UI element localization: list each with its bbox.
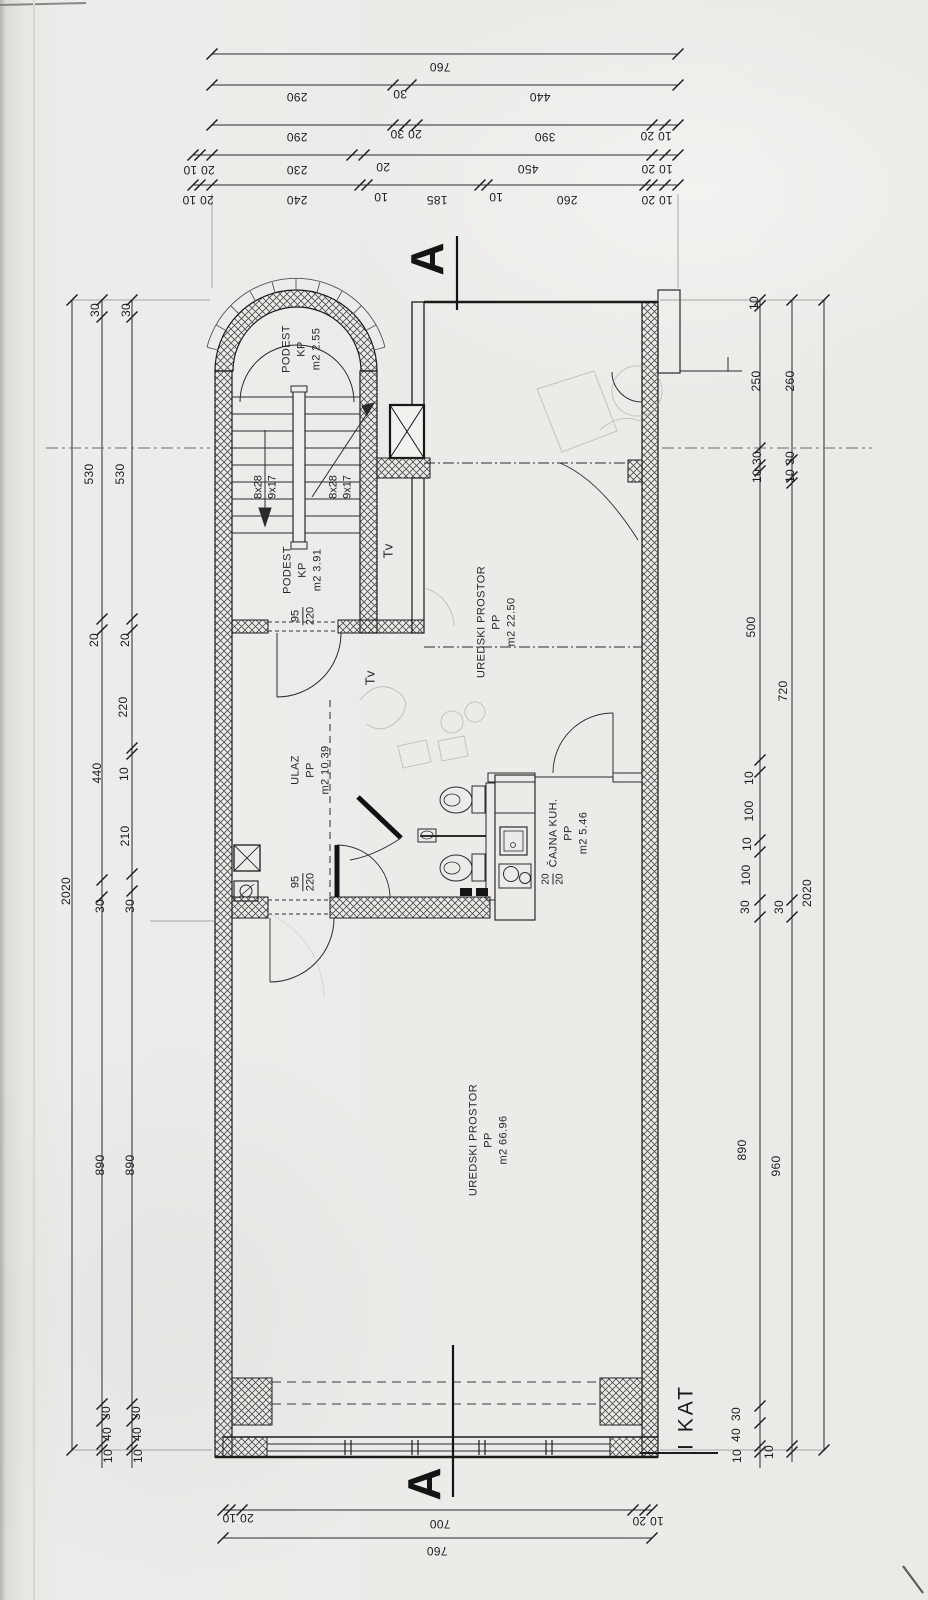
dim-label: 20 [376, 161, 390, 173]
room-line: PODEST [282, 546, 294, 594]
room-line: m2 3.91 [311, 549, 323, 592]
dim-label: 20 10 [183, 164, 215, 176]
dim-label: 10 [751, 469, 763, 483]
dim-label: 20 [119, 633, 131, 647]
dim-label: 10 [118, 767, 130, 781]
dim-label: 500 [745, 617, 757, 638]
dim-label: 100 [740, 865, 752, 886]
room-line: m2 2.55 [310, 328, 322, 371]
dim-label: 700 [430, 1518, 451, 1530]
floor-title: I KAT [676, 1384, 697, 1450]
room-line: m2 22.50 [505, 597, 517, 646]
flight-line: 9x17 [267, 475, 279, 499]
dim-label: 30 [124, 899, 136, 913]
dim-label: 760 [427, 1545, 448, 1557]
door-den: 220 [302, 607, 317, 625]
dim-label: 30 [130, 1406, 142, 1420]
room-line: m2 66.96 [497, 1115, 509, 1164]
door-den: 220 [302, 873, 317, 891]
dim-label: 440 [91, 763, 103, 784]
dim-label: 530 [114, 464, 126, 485]
tv-label-lower: Tv [364, 671, 377, 685]
section-marker-a-bottom: A [401, 1467, 447, 1500]
dim-label: 10 [743, 771, 755, 785]
dim-label: 30 [730, 1407, 742, 1421]
room-line: KP [297, 562, 309, 577]
dim-label: 30 [94, 899, 106, 913]
dim-label: 10 [132, 1449, 144, 1463]
dim-label: 10 20 [640, 130, 672, 142]
door-size-hall: 95 220 [289, 873, 316, 891]
flight-line: 9x17 [342, 475, 354, 499]
dim-label: 10 [741, 837, 753, 851]
floorplan-drawing [0, 0, 928, 1600]
flight-line: 8x28 [328, 475, 340, 499]
room-label-podest-bottom: PODEST KP m2 3.91 [281, 546, 326, 594]
dim-label: 450 [518, 163, 539, 175]
dim-label: 260 [557, 194, 578, 206]
dim-label: 210 [119, 826, 131, 847]
dim-label: 10 20 [632, 1515, 664, 1527]
room-line: m2 10.39 [319, 745, 331, 794]
dim-label: 30 [739, 900, 751, 914]
dim-label: 20 30 [390, 128, 422, 140]
room-line: m2 5.46 [577, 812, 589, 855]
door-size-stair: 95 220 [289, 607, 316, 625]
dim-label: 10 [489, 191, 503, 203]
door-num: 95 [289, 873, 302, 891]
room-line: PP [491, 614, 503, 629]
dim-label: 30 [751, 451, 763, 465]
room-label-tea-kitchen: ČAJNA KUH. PP m2 5.46 [547, 799, 592, 868]
dim-label: 250 [750, 371, 762, 392]
dim-label: 10 20 [641, 194, 673, 206]
room-label-office-upper: UREDSKI PROSTOR PP m2 22.50 [475, 566, 520, 678]
dim-label: 40 [101, 1427, 113, 1441]
dim-label: 185 [427, 194, 448, 206]
dim-label: 10 [374, 191, 388, 203]
dim-label: 2020 [60, 877, 72, 905]
room-line: PP [483, 1132, 495, 1147]
section-lines [453, 236, 457, 1497]
dim-label: 2020 [801, 879, 813, 907]
dim-label: 40 [730, 1428, 742, 1442]
dimension-lines [46, 54, 872, 1538]
dim-label: 440 [530, 91, 551, 103]
dim-label: 890 [124, 1155, 136, 1176]
room-line: PODEST [281, 325, 293, 373]
door-num: 95 [289, 607, 302, 625]
dim-label: 890 [94, 1155, 106, 1176]
room-line: ULAZ [290, 755, 302, 785]
dim-label: 10 [748, 296, 760, 310]
stair-flight-label-right: 8x28 9x17 [327, 475, 356, 499]
dim-label: 30 [89, 303, 101, 317]
frac-den: 20 [552, 873, 566, 884]
room-label-podest-top: PODEST KP m2 2.55 [280, 325, 325, 373]
staircase [232, 345, 374, 549]
dim-label: 20 [88, 633, 100, 647]
room-line: KP [296, 341, 308, 356]
dim-label: 10 20 [641, 163, 673, 175]
dim-label: 220 [117, 697, 129, 718]
dim-label: 290 [287, 131, 308, 143]
dim-label: 290 [287, 91, 308, 103]
dim-label: 30 [393, 88, 407, 100]
flight-line: 8x28 [253, 475, 265, 499]
dim-label: 100 [743, 801, 755, 822]
dim-label: 10 [784, 469, 796, 483]
stair-flight-label-left: 8x28 9x17 [252, 475, 281, 499]
floorplan-sheet: 760 290 30 440 290 20 30 390 10 20 20 10… [0, 0, 928, 1600]
dim-label: 30 [784, 451, 796, 465]
room-line: UREDSKI PROSTOR [476, 566, 488, 678]
section-marker-a-top: A [404, 242, 450, 275]
tv-label-upper: Tv [382, 544, 395, 558]
dim-label: 960 [770, 1156, 782, 1177]
dim-label: 30 [100, 1406, 112, 1420]
dim-label: 530 [83, 464, 95, 485]
paper-marks [0, 0, 923, 1600]
dim-label: 30 [120, 303, 132, 317]
dim-label: 10 [731, 1449, 743, 1463]
room-line: ČAJNA KUH. [548, 799, 560, 868]
dim-label: 10 [102, 1449, 114, 1463]
dim-label: 40 [131, 1427, 143, 1441]
dim-label: 230 [287, 164, 308, 176]
dim-label: 20 10 [182, 194, 214, 206]
kitchen-fraction: 20 20 [541, 873, 566, 884]
walls [207, 278, 742, 1457]
room-line: PP [563, 825, 575, 840]
dim-label: 10 [763, 1445, 775, 1459]
dim-label: 760 [430, 61, 451, 73]
room-line: PP [305, 762, 317, 777]
dim-label: 890 [736, 1140, 748, 1161]
dim-label: 720 [777, 681, 789, 702]
room-label-office-lower: UREDSKI PROSTOR PP m2 66.96 [467, 1084, 512, 1196]
dim-label: 390 [535, 131, 556, 143]
dim-label: 260 [784, 371, 796, 392]
room-label-entry: ULAZ PP m2 10.39 [289, 745, 334, 794]
frac-num: 20 [541, 873, 553, 884]
dim-label: 20 10 [222, 1512, 254, 1524]
dim-label: 30 [773, 900, 785, 914]
room-line: UREDSKI PROSTOR [468, 1084, 480, 1196]
dim-label: 240 [287, 194, 308, 206]
